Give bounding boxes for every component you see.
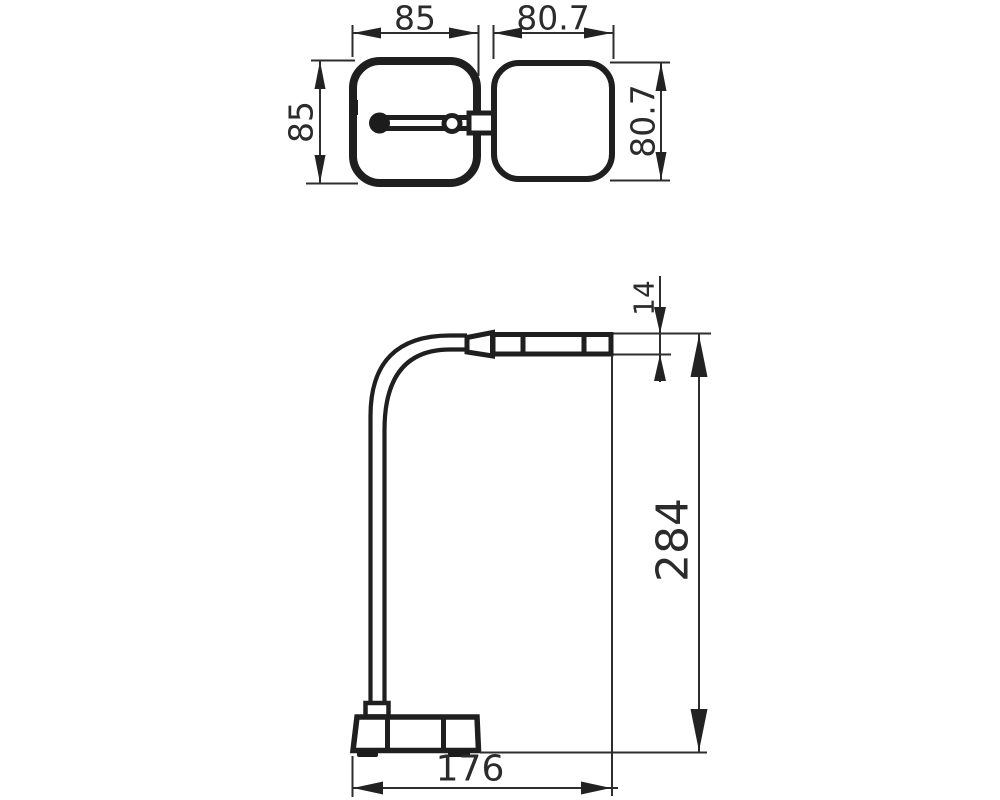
dim-label-overall-height: 284: [648, 498, 699, 582]
dim-head-depth: 80.7: [610, 62, 670, 181]
head-connector: [467, 333, 493, 357]
gooseneck-inner-line: [385, 350, 468, 705]
base-body: [353, 717, 479, 751]
dim-label-overall-depth: 176: [436, 749, 505, 790]
top-view-head-outline: [494, 63, 612, 179]
lamp-dimension-drawing: 85 80.7 85: [0, 0, 1000, 800]
arrow-up: [654, 355, 666, 382]
top-view: 85 80.7 85: [282, 0, 671, 184]
arrow-right: [581, 782, 611, 795]
side-view: 14 284 176: [352, 276, 711, 797]
top-view-base-notch: [351, 100, 358, 115]
arrow-down: [691, 709, 708, 751]
technical-drawing-page: 85 80.7 85: [0, 0, 1000, 800]
dim-overall-height: 284: [648, 334, 708, 752]
dim-label-head-depth: 80.7: [624, 84, 663, 157]
arrow-up: [691, 335, 708, 377]
top-view-arm-joint: [444, 116, 460, 132]
dim-overall-depth: 176: [352, 749, 618, 798]
head-bar: [493, 335, 611, 355]
dim-head-width: 80.7: [493, 0, 614, 59]
dim-label-base-width: 85: [394, 0, 436, 38]
arrow-up: [315, 61, 326, 89]
dim-label-base-depth: 85: [282, 101, 321, 143]
arrow-left: [353, 28, 381, 39]
top-view-arm: [378, 118, 478, 129]
arrow-right: [449, 28, 477, 39]
arrow-down: [315, 155, 326, 183]
arrow-left: [353, 782, 383, 795]
base-foot-left: [357, 751, 378, 758]
dim-base-depth: 85: [282, 60, 359, 184]
dim-label-head-width: 80.7: [516, 0, 589, 38]
dim-head-thickness: 14: [628, 276, 667, 382]
dim-label-head-thickness: 14: [628, 280, 661, 316]
top-view-arm-knob: [369, 113, 390, 134]
